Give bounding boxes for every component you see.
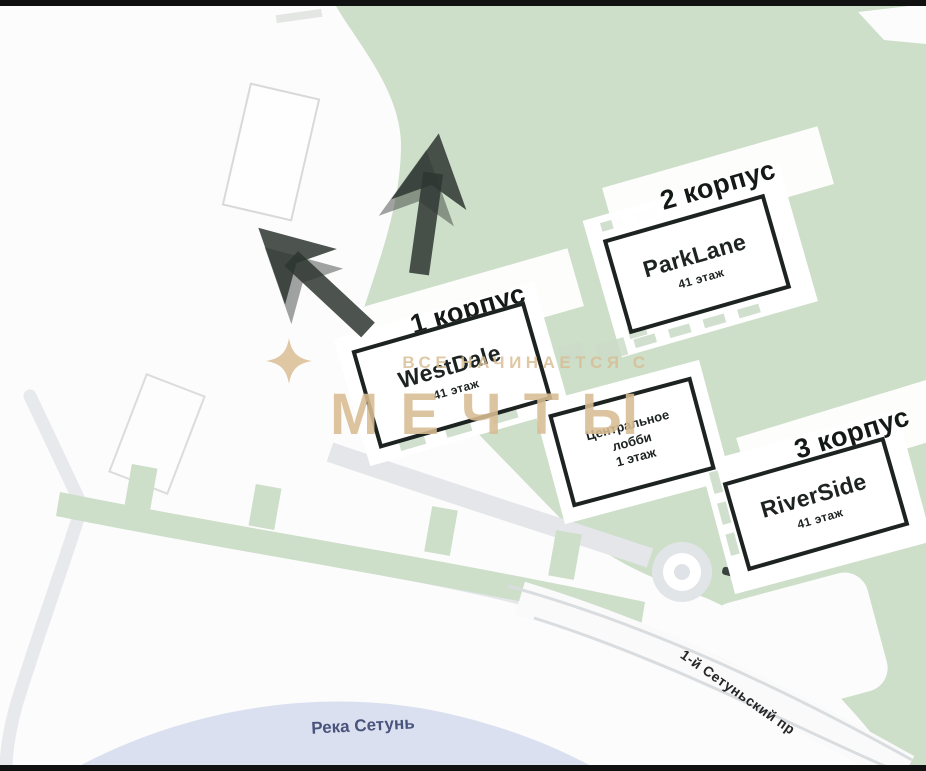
building-footprint-outline bbox=[223, 84, 319, 221]
frame-top bbox=[0, 0, 926, 6]
sparkle-icon bbox=[266, 338, 312, 384]
roundabout bbox=[652, 542, 712, 602]
watermark-tagline: ВСЕ НАЧИНАЕТСЯ С bbox=[371, 353, 681, 373]
path-dash bbox=[276, 9, 323, 23]
site-plan-map: 2 корпус ParkLane 41 этаж 1 корпус WestD… bbox=[0, 0, 926, 771]
road-left-upper bbox=[30, 396, 82, 506]
frame-bottom bbox=[0, 765, 926, 771]
road-left-lower bbox=[6, 506, 82, 771]
watermark-brand: МЕЧТЫ bbox=[275, 381, 715, 448]
building-footprint-outline bbox=[109, 374, 204, 493]
